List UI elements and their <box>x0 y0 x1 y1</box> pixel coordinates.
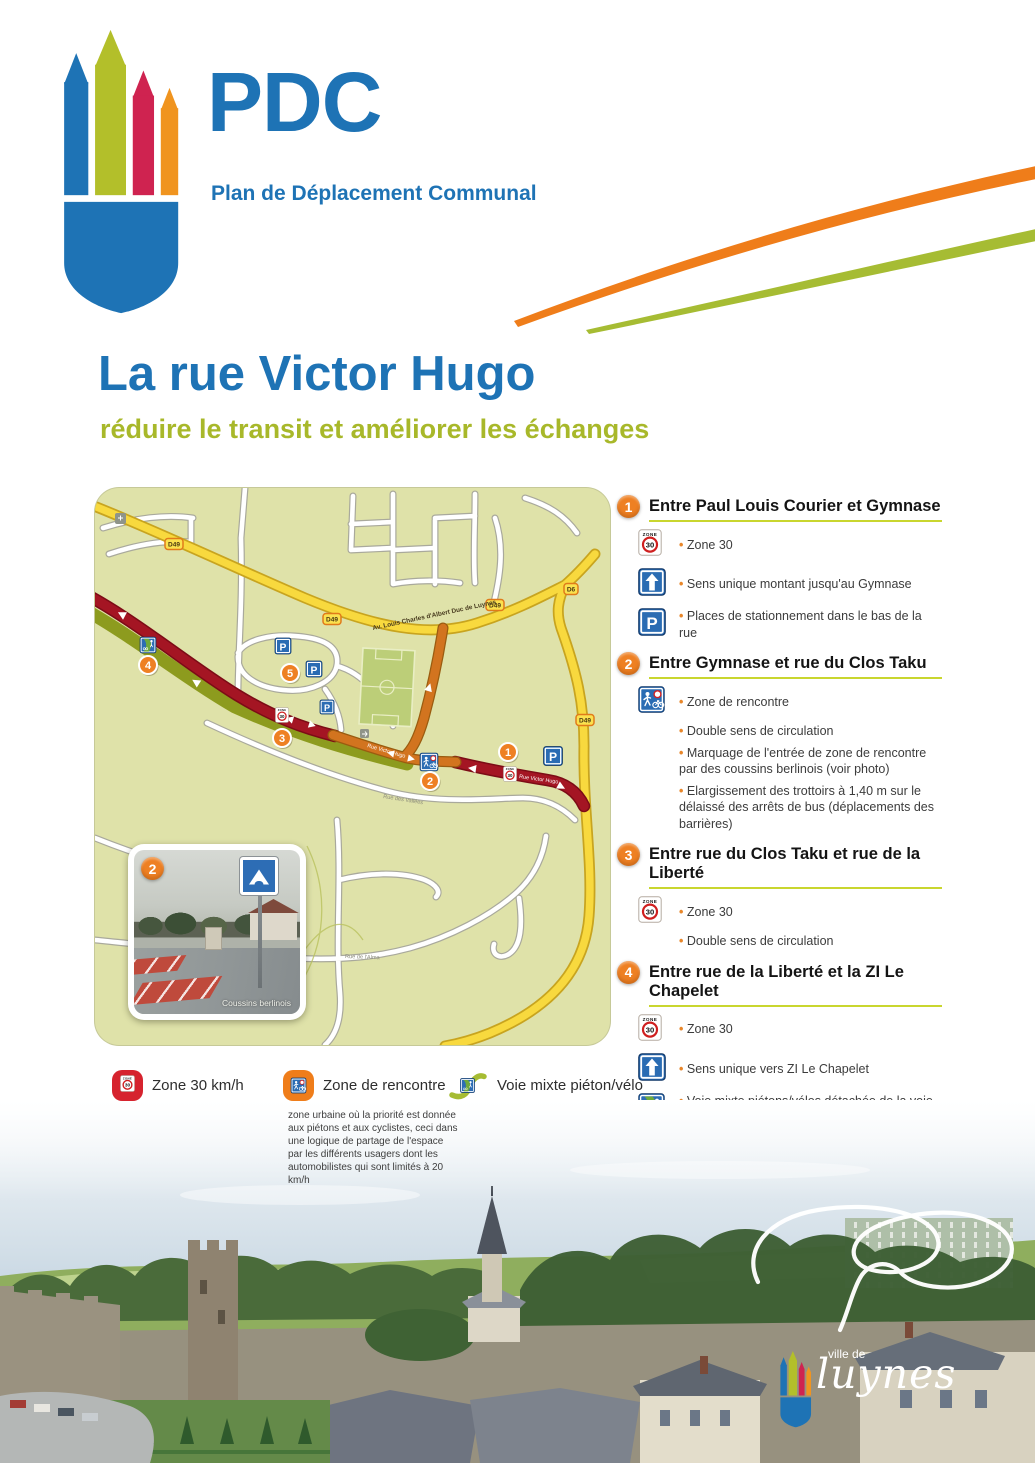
city-map: D49 D49 D49 D6 D49 Av. Louis Charles d'A… <box>95 488 610 1045</box>
legend-mixed-path: Voie mixte piéton/vélo <box>448 1070 643 1101</box>
photo-marker-badge: 2 <box>141 857 164 880</box>
parking-sign-icon <box>544 747 563 766</box>
map-marker-4: 4 <box>139 656 159 676</box>
section-1: 1 Entre Paul Louis Courier et Gymnase Zo… <box>617 497 942 641</box>
section-2: 2 Entre Gymnase et rue du Clos Taku Zone… <box>617 654 942 832</box>
road-badge-d6: D6 <box>564 584 578 595</box>
zone-30-sign-icon <box>638 896 662 923</box>
pdc-title: PDC <box>207 60 381 144</box>
landscape-drawing <box>0 1100 1035 1463</box>
meeting-zone-sign-icon <box>420 753 438 771</box>
legend-label: Zone de rencontre <box>323 1077 446 1094</box>
legend-zone-30: Zone 30 km/h <box>112 1070 244 1101</box>
parking-sign-icon <box>320 700 334 714</box>
list-item: Elargissement des trottoirs à 1,40 m sur… <box>638 783 942 833</box>
svg-text:1: 1 <box>505 747 511 759</box>
list-item: Zone 30 <box>638 896 942 928</box>
luynes-shield-logo <box>780 1350 814 1428</box>
section-title: Entre rue du Clos Taku et rue de la Libe… <box>649 845 942 889</box>
svg-text:D49: D49 <box>168 541 180 548</box>
parking-sign-icon <box>275 638 291 654</box>
road-badge-d49: D49 <box>165 539 183 550</box>
pdc-shield-logo <box>63 26 189 316</box>
meeting-zone-legend-icon <box>283 1070 314 1101</box>
svg-text:2: 2 <box>427 776 433 788</box>
section-number-badge: 1 <box>617 495 640 518</box>
zone-30-sign-icon <box>638 1014 662 1041</box>
section-number-badge: 2 <box>617 652 640 675</box>
mixed-path-sign-icon <box>140 637 156 653</box>
zone-30-sign-icon <box>638 529 662 556</box>
luynes-brand-name: luynes <box>816 1350 956 1398</box>
legend-label: Zone 30 km/h <box>152 1077 244 1094</box>
page-subtitle: réduire le transit et améliorer les écha… <box>100 414 649 445</box>
green-swoosh <box>586 229 1035 334</box>
map-marker-5: 5 <box>281 664 301 684</box>
svg-text:D6: D6 <box>567 586 576 593</box>
section-title: Entre Gymnase et rue du Clos Taku <box>649 654 942 679</box>
berlin-cushion-photo: 2 Coussins berlinois <box>134 850 300 1014</box>
direction-arrows <box>116 609 567 793</box>
page-title: La rue Victor Hugo <box>98 346 535 402</box>
page: PDC Plan de Déplacement Communal La rue … <box>0 0 1035 1463</box>
list-item: Places de stationnement dans le bas de l… <box>638 608 942 641</box>
map-signs <box>140 637 562 781</box>
svg-text:4: 4 <box>145 660 152 672</box>
mixed-path-legend-icon <box>448 1070 488 1101</box>
parking-sign-icon <box>638 608 666 636</box>
list-item: Zone de rencontre <box>638 686 942 718</box>
list-item: Zone 30 <box>638 1014 942 1046</box>
rue-de-l-alma-label: Rue de l'Alma <box>345 954 381 961</box>
orange-swoosh <box>514 166 1035 327</box>
zone-30-sign-icon <box>275 708 288 723</box>
zone-30-legend-icon <box>112 1070 143 1101</box>
svg-text:D49: D49 <box>579 717 591 724</box>
map-marker-2: 2 <box>421 772 441 792</box>
svg-text:D49: D49 <box>326 616 338 623</box>
aerial-town-photo: ville de luynes <box>0 1100 1035 1463</box>
road-badge-d49: D49 <box>323 614 341 625</box>
list-item: Zone 30 <box>638 529 942 561</box>
parking-sign-icon <box>306 661 322 677</box>
section-title: Entre rue de la Liberté et la ZI Le Chap… <box>649 963 942 1007</box>
legend-meeting-zone: Zone de rencontre <box>283 1070 446 1101</box>
list-item: Double sens de circulation <box>638 933 942 950</box>
one-way-sign-icon <box>638 568 666 596</box>
zone-30-sign-icon <box>503 767 516 782</box>
svg-text:5: 5 <box>287 668 293 680</box>
section-number-badge: 3 <box>617 843 640 866</box>
photo-caption: Coussins berlinois <box>222 998 291 1008</box>
pdc-subtitle: Plan de Déplacement Communal <box>211 182 537 206</box>
speed-bump-sign-icon <box>240 857 278 895</box>
road-badge-d49: D49 <box>576 715 594 726</box>
map-marker-3: 3 <box>273 729 293 749</box>
section-number-badge: 4 <box>617 961 640 984</box>
sports-field <box>359 648 415 727</box>
section-title: Entre Paul Louis Courier et Gymnase <box>649 497 942 522</box>
map-photo-inset: 2 Coussins berlinois <box>128 844 306 1020</box>
list-item: Sens unique montant jusqu'au Gymnase <box>638 568 942 601</box>
list-item: Double sens de circulation <box>638 723 942 740</box>
photo-utility-box <box>205 927 222 950</box>
map-marker-1: 1 <box>499 743 519 763</box>
list-item: Sens unique vers ZI Le Chapelet <box>638 1053 942 1086</box>
section-3: 3 Entre rue du Clos Taku et rue de la Li… <box>617 845 942 950</box>
legend-label: Voie mixte piéton/vélo <box>497 1077 643 1094</box>
meeting-zone-sign-icon <box>638 686 665 713</box>
legend-note: zone urbaine où la priorité est donnée a… <box>288 1109 460 1187</box>
svg-text:3: 3 <box>279 733 285 745</box>
list-item: Marquage de l'entrée de zone de rencontr… <box>638 745 942 778</box>
